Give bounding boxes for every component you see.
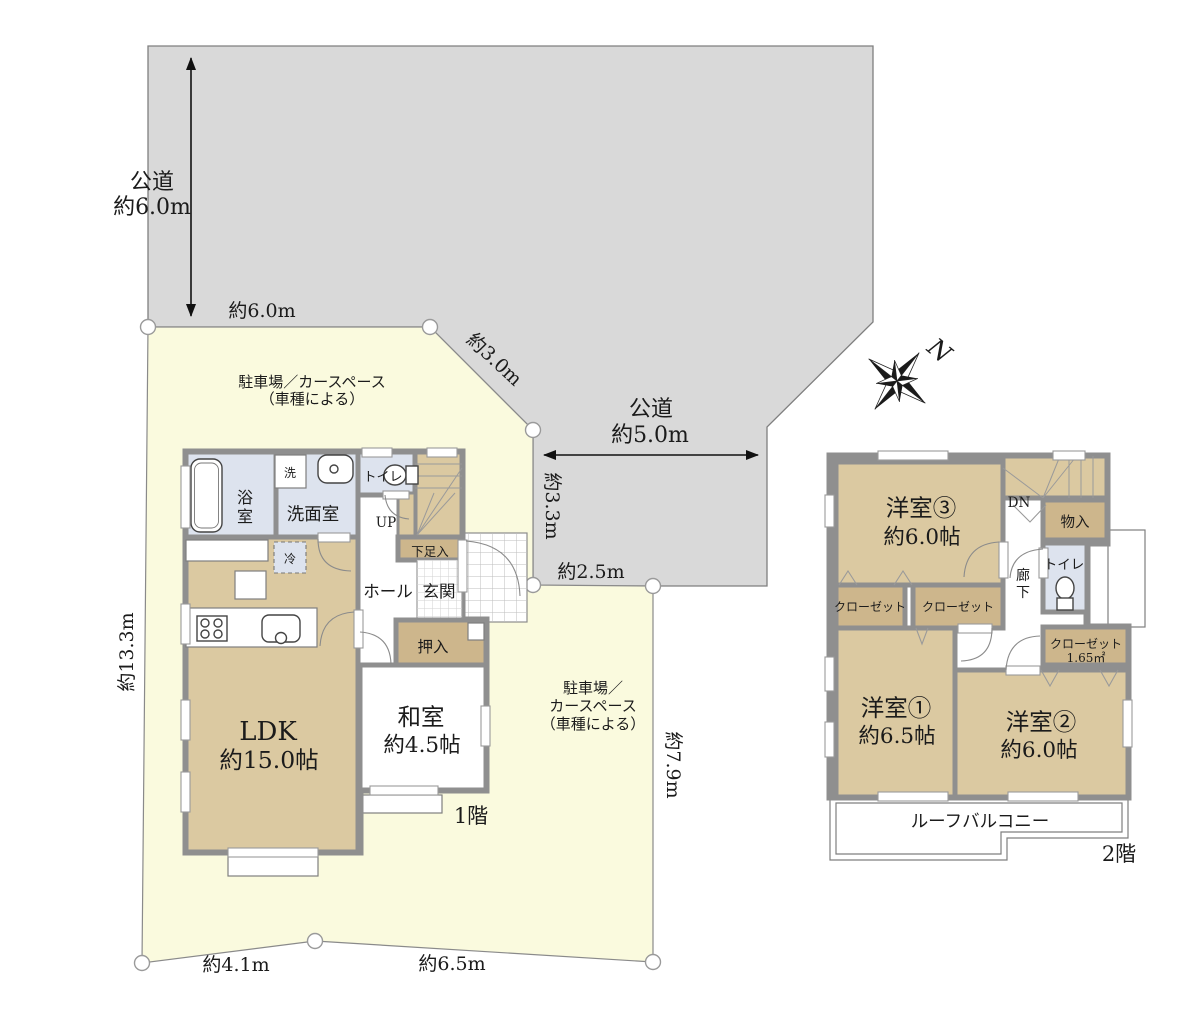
genkan-label: 玄関 [423, 582, 456, 601]
closet-c-size: 1.65㎡ [1067, 651, 1106, 665]
floor2-plan: 洋室③ 約6.0帖 DN 物入 トイレ 廊 下 クローゼット クローゼット クロ… [825, 451, 1145, 866]
room-ldk [186, 537, 358, 852]
washer-label: 洗 [284, 466, 296, 480]
closet-b-label: クローゼット [922, 600, 994, 614]
washitsu-label: 和室 [398, 703, 445, 731]
terrace-step-ldk [228, 856, 318, 876]
compass-icon: N [846, 330, 958, 431]
road-top-width: 約6.0m [113, 195, 191, 220]
ldk-table [235, 571, 266, 599]
oshiire-side-box [468, 623, 484, 640]
oshiire-label: 押入 [417, 638, 448, 656]
corridor-label-1: 廊 [1016, 567, 1030, 584]
fridge-label: 冷 [284, 552, 296, 566]
dim-east-lower: 約7.9m [662, 731, 684, 798]
road-side-label: 公道 [629, 397, 673, 422]
stairs-1f-landing [398, 493, 415, 537]
dn-label: DN [1008, 495, 1031, 511]
floorplan-page: 公道 約6.0m 公道 約5.0m 約6.0m 約3.0m 約3.3m 約2.5… [0, 0, 1200, 1022]
toilet-icon-2f [1056, 577, 1074, 610]
toilet-label-1f: トイレ [363, 470, 402, 485]
parking-north-line2: （車種による） [260, 390, 365, 408]
closet-a-label: クローゼット [834, 600, 906, 614]
counter-top-strip [186, 540, 268, 561]
getabako-label: 下足入 [411, 544, 449, 559]
yoshitsu2-label: 洋室② [1006, 708, 1077, 736]
dim-east-upper: 約3.3m [541, 472, 563, 539]
dim-south-left: 約4.1m [202, 954, 269, 976]
senmenshitsu-label: 洗面室 [287, 505, 340, 525]
ldk-size: 約15.0帖 [219, 746, 318, 774]
stairs-2f [1003, 456, 1107, 498]
parking-east-line1: 駐車場／ [563, 679, 623, 697]
stairs-1f [415, 452, 462, 537]
room-yoshitsu3 [836, 462, 1003, 585]
toilet-label-2f: トイレ [1044, 557, 1085, 573]
terrace-step-washitsu [360, 795, 442, 813]
roof-balcony-label: ルーフバルコニー [911, 812, 1050, 832]
bath-label-1: 浴 [237, 488, 253, 507]
yoshitsu3-size: 約6.0帖 [883, 525, 960, 550]
yoshitsu1-label: 洋室① [861, 694, 932, 722]
compass-north-label: N [921, 332, 958, 370]
floorplan-drawing: 公道 約6.0m 公道 約5.0m 約6.0m 約3.0m 約3.3m 約2.5… [0, 0, 1200, 1022]
closet-c-label: クローゼット [1050, 637, 1122, 651]
washbasin-icon [318, 455, 353, 483]
up-label: UP [376, 515, 396, 531]
yoshitsu1-size: 約6.5帖 [858, 724, 935, 749]
floor1-label: 1階 [454, 804, 488, 828]
bath-label-2: 室 [237, 507, 253, 526]
parking-east-line2: カースペース [549, 697, 636, 715]
parking-north-line1: 駐車場／カースペース [238, 373, 385, 391]
side-bay [1108, 530, 1145, 627]
parking-east-line3: （車種による） [541, 715, 646, 733]
stove-icon [197, 616, 227, 641]
ldk-label: LDK [239, 717, 297, 747]
road-side-width: 約5.0m [611, 423, 689, 448]
dim-south-right: 約6.5m [418, 953, 485, 975]
floor2-label: 2階 [1102, 842, 1136, 866]
dim-east-mid: 約2.5m [557, 561, 624, 583]
kitchen-sink-icon [262, 615, 300, 644]
hall-label: ホール [363, 582, 413, 601]
bathtub-icon [191, 459, 222, 532]
dim-west: 約13.3m [116, 612, 138, 691]
dim-frontage-top: 約6.0m [228, 300, 295, 322]
yoshitsu3-label: 洋室③ [886, 494, 957, 522]
road-top-label: 公道 [130, 170, 174, 195]
monoire-label: 物入 [1061, 514, 1090, 531]
corridor-label-2: 下 [1016, 585, 1030, 601]
washitsu-size: 約4.5帖 [383, 733, 460, 758]
yoshitsu2-size: 約6.0帖 [1000, 738, 1077, 763]
